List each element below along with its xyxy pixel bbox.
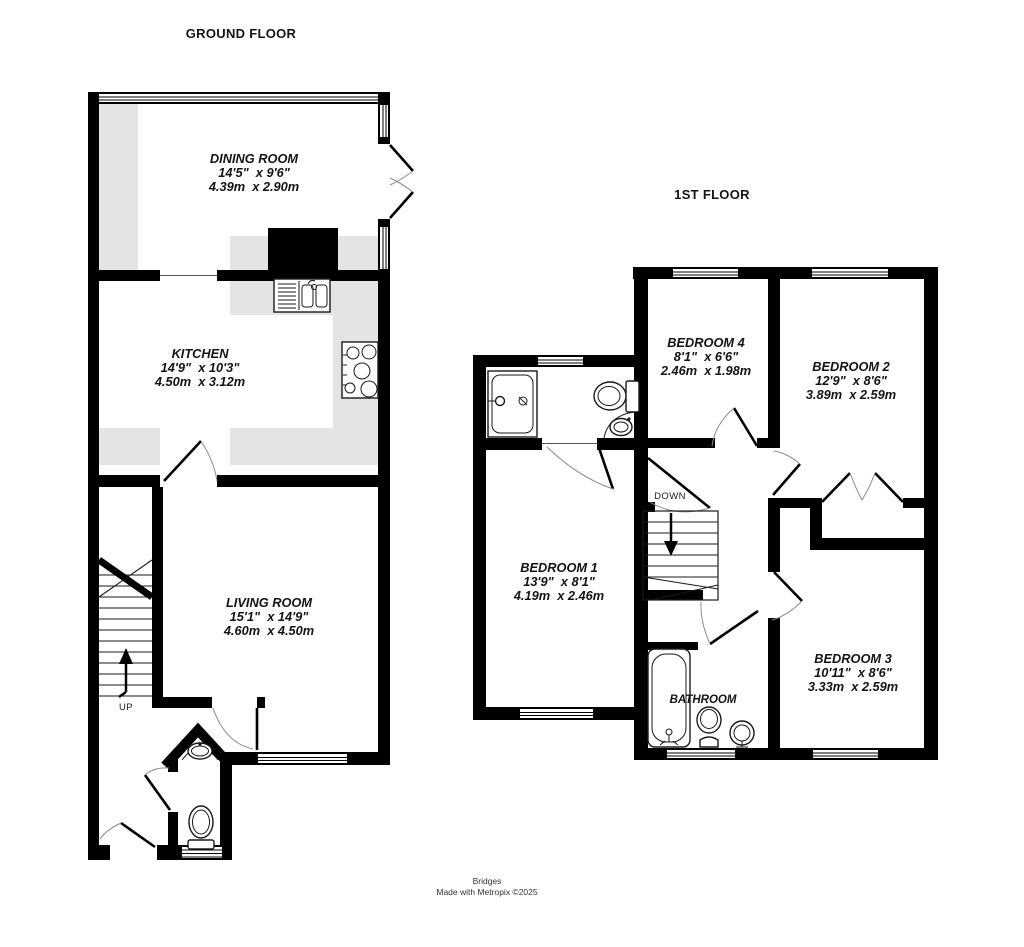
- bedroom-4-label: BEDROOM 4 8'1" x 6'6" 2.46m x 1.98m: [660, 335, 751, 378]
- room-metric: 4.19m x 2.46m: [513, 588, 604, 603]
- room-name: BEDROOM 2: [812, 359, 890, 374]
- room-name: BEDROOM 1: [520, 560, 598, 575]
- wc-door: [145, 768, 170, 810]
- front-door: [100, 823, 155, 847]
- footer-brand: Bridges: [473, 876, 502, 886]
- staircase-up: [99, 560, 152, 697]
- bathroom-toilet: [697, 707, 721, 747]
- down-label: DOWN: [654, 491, 686, 502]
- bedroom-1-door: [547, 447, 613, 489]
- chimney-breast: [268, 228, 338, 277]
- room-name: KITCHEN: [172, 346, 230, 361]
- bedroom-3-label: BEDROOM 3 10'11" x 8'6" 3.33m x 2.59m: [808, 651, 898, 694]
- kitchen-sink: [274, 279, 330, 312]
- staircase-down: [643, 511, 718, 600]
- living-room-door: [213, 708, 257, 750]
- first-floor-title: 1ST FLOOR: [674, 187, 750, 202]
- room-name: LIVING ROOM: [226, 595, 312, 610]
- french-doors: [390, 145, 413, 218]
- room-imperial: 10'11" x 8'6": [814, 665, 893, 680]
- shower: [488, 371, 537, 437]
- bathroom-sink: [730, 721, 754, 747]
- up-arrow: [119, 648, 133, 697]
- bedroom-1-label: BEDROOM 1 13'9" x 8'1" 4.19m x 2.46m: [513, 560, 604, 603]
- ground-floor-plan: GROUND FLOOR DINING ROOM 14'5" x 9'6" 4.…: [88, 26, 413, 860]
- shower-room-corner-sink: [604, 412, 634, 438]
- bedroom-2-label: BEDROOM 2 12'9" x 8'6" 3.89m x 2.59m: [806, 359, 896, 402]
- hob: [342, 342, 378, 398]
- bedroom-2-wardrobe-doors: [822, 473, 903, 502]
- footer: Bridges Made with Metropix ©2025: [436, 876, 538, 897]
- room-metric: 4.60m x 4.50m: [223, 623, 314, 638]
- room-imperial: 13'9" x 8'1": [523, 574, 596, 589]
- kitchen-label: KITCHEN 14'9" x 10'3" 4.50m x 3.12m: [154, 346, 245, 389]
- up-label: UP: [119, 702, 133, 713]
- room-metric: 2.46m x 1.98m: [660, 363, 751, 378]
- wc-toilet: [188, 806, 214, 849]
- bathroom-door: [701, 602, 758, 644]
- floorplan-page: GROUND FLOOR DINING ROOM 14'5" x 9'6" 4.…: [0, 0, 1024, 947]
- ground-floor-title: GROUND FLOOR: [186, 26, 297, 41]
- living-room-label: LIVING ROOM 15'1" x 14'9" 4.60m x 4.50m: [223, 595, 314, 638]
- floorplan-drawing: GROUND FLOOR DINING ROOM 14'5" x 9'6" 4.…: [0, 0, 1024, 947]
- down-arrow: [664, 513, 678, 556]
- bathroom-label: BATHROOM: [670, 694, 737, 706]
- room-imperial: 12'9" x 8'6": [815, 373, 888, 388]
- dining-room-label: DINING ROOM 14'5" x 9'6" 4.39m x 2.90m: [208, 151, 299, 194]
- landing-door: [648, 458, 710, 512]
- room-imperial: 14'9" x 10'3": [161, 360, 241, 375]
- shower-room-toilet: [594, 381, 639, 412]
- room-imperial: 8'1" x 6'6": [674, 349, 739, 364]
- footer-credit: Made with Metropix ©2025: [436, 887, 538, 897]
- room-imperial: 15'1" x 14'9": [230, 609, 310, 624]
- room-metric: 3.89m x 2.59m: [806, 387, 896, 402]
- room-name: DINING ROOM: [210, 151, 298, 166]
- room-imperial: 14'5" x 9'6": [218, 165, 291, 180]
- room-name: BEDROOM 4: [667, 335, 745, 350]
- room-metric: 4.50m x 3.12m: [154, 374, 245, 389]
- first-floor-plan: 1ST FLOOR BEDROOM 4 8'1" x 6'6" 2.46m x …: [473, 187, 938, 760]
- room-metric: 4.39m x 2.90m: [208, 179, 299, 194]
- room-name: BEDROOM 3: [814, 651, 892, 666]
- room-metric: 3.33m x 2.59m: [808, 679, 898, 694]
